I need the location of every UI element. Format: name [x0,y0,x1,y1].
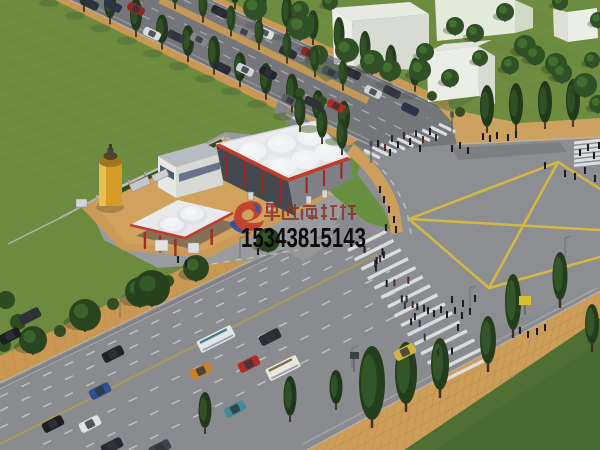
svg-text:15343815143: 15343815143 [241,222,366,253]
